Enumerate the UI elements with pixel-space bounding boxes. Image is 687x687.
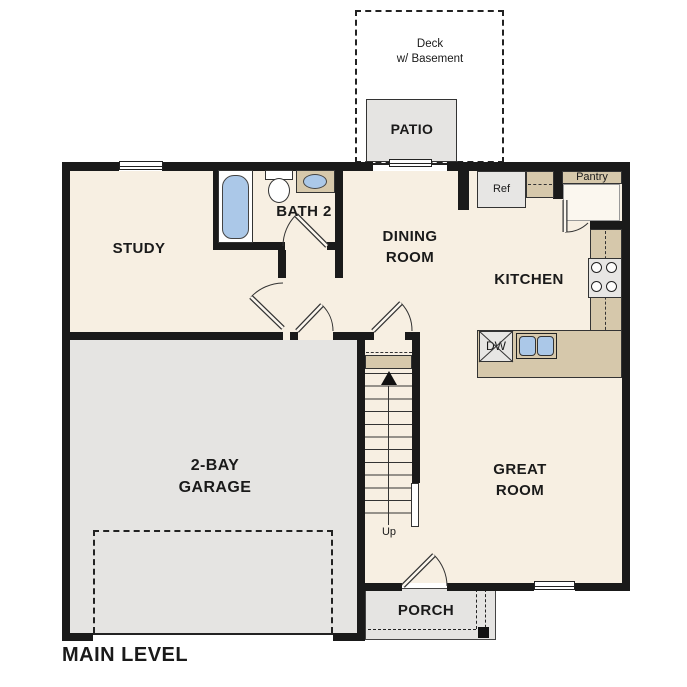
sink-basin	[537, 336, 554, 356]
wall-segment	[213, 242, 285, 250]
deck-label: Deckw/ Basement	[365, 37, 495, 67]
wall-segment	[590, 221, 622, 229]
wall-segment	[62, 633, 93, 641]
wall-segment	[62, 332, 283, 340]
refrigerator-label: Ref	[477, 171, 526, 208]
stair-overhead-dash	[366, 352, 412, 353]
study-label: STUDY	[79, 238, 199, 259]
garage-label: 2-BAYGARAGE	[155, 455, 275, 499]
burner-icon	[606, 262, 617, 273]
wall-segment	[290, 332, 298, 340]
burner-icon	[591, 262, 602, 273]
wall-segment	[458, 162, 469, 210]
pantry-interior	[563, 184, 620, 221]
stair-closet	[365, 355, 412, 369]
floor-plan: Deckw/ Basement PATIO Pantr	[0, 0, 687, 687]
wall-segment	[62, 162, 70, 641]
wall-segment	[365, 583, 402, 591]
wall-segment	[357, 332, 365, 641]
garage-door-line	[93, 633, 333, 635]
bath-sink	[303, 174, 327, 189]
stair-center-line	[388, 386, 389, 525]
wall-segment	[278, 250, 286, 278]
porch-label: PORCH	[366, 600, 486, 621]
patio-label: PATIO	[368, 119, 456, 140]
wall-segment	[412, 332, 420, 483]
pantry-label: Pantry	[562, 171, 622, 184]
wall-segment	[333, 633, 365, 641]
wall-segment	[405, 332, 412, 340]
kitchen-label: KITCHEN	[469, 269, 589, 290]
great-room-label: GREATROOM	[460, 459, 580, 501]
stair-railing	[411, 483, 419, 527]
burner-icon	[606, 281, 617, 292]
wall-segment	[575, 583, 630, 591]
bath-label: BATH 2	[244, 201, 364, 222]
plan-title: MAIN LEVEL	[62, 645, 282, 666]
up-label: Up	[377, 526, 401, 538]
wall-segment	[622, 162, 630, 591]
wall-segment	[365, 332, 374, 340]
wall-segment	[62, 162, 119, 171]
cabinet-dash-line	[528, 184, 552, 185]
sink-basin	[519, 336, 536, 356]
burner-icon	[591, 281, 602, 292]
dining-room-label: DININGROOM	[350, 226, 470, 268]
window	[119, 161, 163, 170]
dishwasher-label: DW	[479, 331, 513, 362]
window	[534, 581, 575, 590]
toilet-bowl	[268, 178, 290, 203]
porch-railing-line	[368, 629, 476, 630]
up-arrow-icon	[381, 371, 397, 385]
garage-door-setback	[93, 530, 333, 633]
patio-slider-window	[389, 159, 432, 167]
wall-segment	[447, 162, 630, 171]
wall-segment	[447, 583, 534, 591]
porch-post	[478, 627, 489, 638]
